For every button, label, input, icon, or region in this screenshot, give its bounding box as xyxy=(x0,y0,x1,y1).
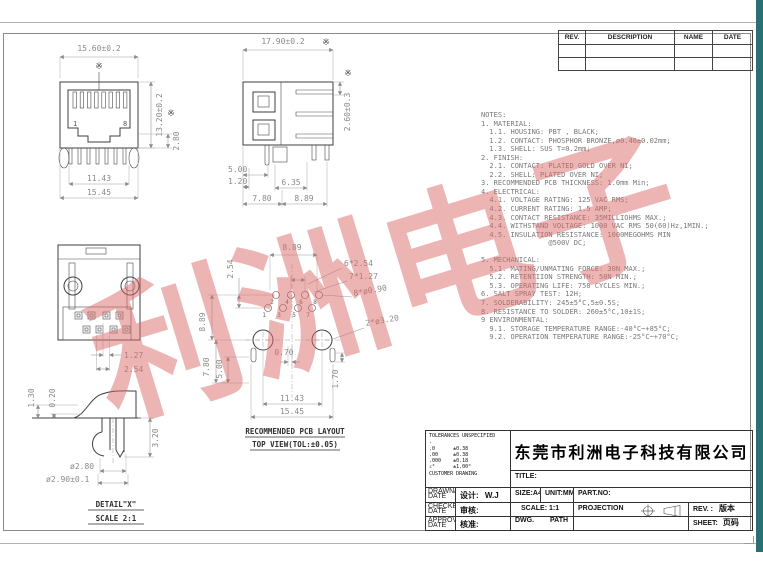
critical-dim-star: ※ xyxy=(322,38,330,48)
dim-pcb-b1: 11.43 xyxy=(280,394,304,403)
dim-side-c: 6.35 xyxy=(281,178,300,187)
pin-label-1: 1 xyxy=(73,120,77,128)
dim-front-panel: 2.80 xyxy=(172,131,181,150)
pcb-layout-drawing: 8.89 2.54 6*2.54 7*1.27 8*ø0.90 2*ø3.20 … xyxy=(192,236,432,456)
dim-pcb-b2: 15.45 xyxy=(280,407,304,416)
dim-front-width: 15.60±0.2 xyxy=(77,44,121,53)
dim-pcb-row: 2.54 xyxy=(226,259,235,278)
dim-rear-a: 1.27 xyxy=(124,351,143,360)
revision-table-header: REV. DESCRIPTION NAME DATE xyxy=(559,31,752,44)
front-view-drawing: 15.60±0.2 ※ 1 8 11.43 15.45 13.20±0.2 ※ … xyxy=(38,36,193,208)
revision-row-empty xyxy=(559,44,752,57)
title-block: TOLERANCES UNSPECIFIED . .0 ±0.38 .00 ±0… xyxy=(425,430,753,531)
fold-mark xyxy=(744,536,754,544)
approved-date-label: APPROVED/ DATE xyxy=(426,517,456,530)
rev-label: REV. : xyxy=(689,504,713,513)
dim-detail-e: ø2.90±0.1 xyxy=(46,475,90,484)
date-col-header: DATE xyxy=(712,31,752,44)
design-value: W.J xyxy=(485,491,499,500)
notes-block: NOTES: 1. MATERIAL: 1.1. HOUSING: PBT , … xyxy=(481,111,709,342)
revision-row-empty xyxy=(559,57,752,70)
dim-side-width: 17.90±0.2 xyxy=(261,37,305,46)
dim-pcb-left2: 7.80 xyxy=(202,357,211,376)
tolerance-text: TOLERANCES UNSPECIFIED . .0 ±0.38 .00 ±0… xyxy=(426,431,510,477)
approver-cell: 核准: xyxy=(456,517,511,530)
projection-label: PROJECTION xyxy=(574,503,624,512)
dim-side-b: 1.20 xyxy=(228,177,247,186)
pcb-pin-6: 6 xyxy=(299,299,303,306)
dim-pcb-left3: 5.00 xyxy=(215,359,224,378)
sheet-top-edge xyxy=(0,22,763,23)
rev-value: 版本 xyxy=(719,504,735,513)
pcb-caption-1: RECOMMENDED PCB LAYOUT xyxy=(245,427,345,436)
title-field: TITLE: xyxy=(511,471,752,488)
dim-front-height: 13.20±0.2 xyxy=(155,93,164,137)
dim-side-d: 7.80 xyxy=(252,194,271,203)
name-col-header: NAME xyxy=(674,31,712,44)
dim-detail-a: 1.30 xyxy=(27,388,36,407)
dim-front-total: 15.45 xyxy=(87,188,111,197)
design-label: 设计: xyxy=(460,491,479,500)
dim-pcb-r: 1.70 xyxy=(331,369,340,388)
pcb-pin-7: 7 xyxy=(306,312,310,319)
dim-side-tail: 2.60±0.3 xyxy=(343,93,352,132)
drawn-date-label: DRAWN/ DATE xyxy=(426,488,456,503)
pcb-caption-2: TOP VIEW(TOL:±0.05) xyxy=(252,440,338,449)
dim-pcb-left1: 8.89 xyxy=(198,312,207,331)
side-view-drawing: 17.90±0.2 ※ ※ 2.60±0.3 5.00 1.20 6.35 7.… xyxy=(226,28,386,223)
designer-cell: 设计: W.J xyxy=(456,488,511,503)
rev-col-header: REV. xyxy=(559,31,585,44)
detail-x-drawing: 1.30 0.20 3.20 ø2.80 ø2.90±0.1 DETAIL"X"… xyxy=(26,370,196,532)
dim-pcb-p3: 8*ø0.90 xyxy=(353,283,388,298)
dwg-label: DWG. xyxy=(511,517,534,524)
rev-cell: REV. : 版本 xyxy=(689,503,752,517)
snap-post xyxy=(93,418,125,457)
blank-cell xyxy=(574,517,689,530)
revision-table: REV. DESCRIPTION NAME DATE xyxy=(558,30,753,71)
dim-detail-d: ø2.80 xyxy=(70,462,94,471)
scale-field: SCALE: 1:1 xyxy=(511,503,574,517)
dwg-cell: DWG. PATH xyxy=(511,517,574,530)
part-no-field: PART.NO: xyxy=(574,488,752,503)
sheet-cell: SHEET: 页码 xyxy=(689,517,752,530)
sheet-value: 页码 xyxy=(723,518,739,527)
dim-pcb-p1: 6*2.54 xyxy=(344,259,373,268)
canvas-edge-strip xyxy=(756,0,763,552)
sheet-label: SHEET: xyxy=(689,518,718,527)
dim-pcb-p2: 7*1.27 xyxy=(349,272,378,281)
mounting-holes xyxy=(251,330,335,362)
pcb-pin-4: 4 xyxy=(285,299,289,306)
sheet-bottom-edge xyxy=(0,543,763,544)
detail-label: DETAIL"X" xyxy=(96,500,137,509)
unit-field: UNIT:MM. xyxy=(541,488,574,503)
contact-slots xyxy=(73,92,127,108)
size-field: SIZE:A4 xyxy=(511,488,541,503)
pcb-pin-8: 8 xyxy=(313,299,317,306)
dim-pcb-top: 8.89 xyxy=(282,243,301,252)
pcb-pin-2: 2 xyxy=(270,299,274,306)
checked-date-label: CHECKED/ DATE xyxy=(426,503,456,517)
projection-symbol-icon xyxy=(640,504,684,517)
pcb-pin-3: 3 xyxy=(277,312,281,319)
checker-cell: 审核: xyxy=(456,503,511,517)
critical-dim-star: ※ xyxy=(95,62,103,72)
critical-dim-star: ※ xyxy=(344,69,352,79)
rear-pins xyxy=(75,312,130,333)
critical-dim-star: ※ xyxy=(167,109,175,119)
dim-side-a: 5.00 xyxy=(228,165,247,174)
dim-pcb-p4: 2*ø3.20 xyxy=(365,313,400,328)
rear-view-drawing: 1.27 2.54 xyxy=(46,231,186,383)
pin-label-8: 8 xyxy=(123,120,127,128)
company-name: 东莞市利洲电子科技有限公司 xyxy=(511,431,752,471)
pcb-pin-5: 5 xyxy=(292,312,296,319)
projection-cell: PROJECTION xyxy=(574,503,689,517)
solder-legs xyxy=(265,145,329,165)
pcb-pin-1: 1 xyxy=(262,312,266,319)
dim-side-e: 8.89 xyxy=(294,194,313,203)
tolerance-box: TOLERANCES UNSPECIFIED . .0 ±0.38 .00 ±0… xyxy=(426,431,511,488)
path-label: PATH xyxy=(546,517,568,524)
dim-front-pins: 11.43 xyxy=(87,174,111,183)
description-col-header: DESCRIPTION xyxy=(585,31,674,44)
detail-scale-label: SCALE 2:1 xyxy=(96,514,137,523)
dim-pcb-mid: 0.70 xyxy=(274,348,293,357)
engineering-drawing-sheet: { "watermark": { "text": "利洲电子", "color"… xyxy=(0,0,763,570)
dim-detail-b: 0.20 xyxy=(48,388,57,407)
dim-detail-c: 3.20 xyxy=(151,428,160,447)
shield-legs xyxy=(59,148,139,168)
